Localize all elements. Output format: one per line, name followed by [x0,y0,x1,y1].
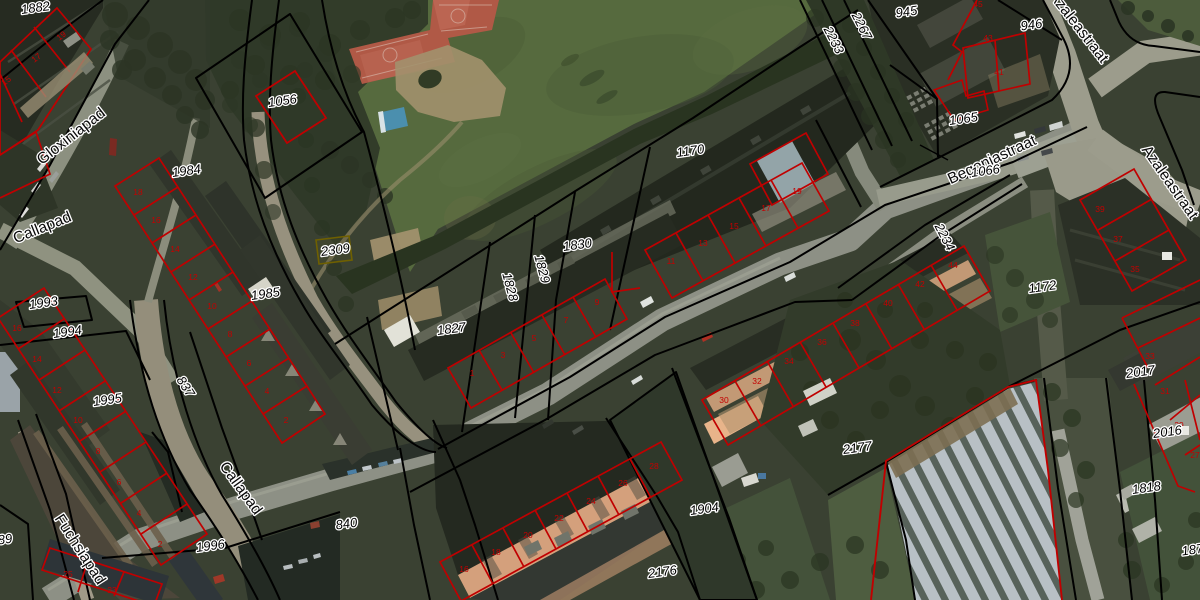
svg-text:24: 24 [586,496,596,506]
svg-text:38: 38 [850,318,860,328]
svg-text:32: 32 [752,376,762,386]
svg-text:26: 26 [618,478,628,488]
svg-text:22: 22 [554,513,564,523]
svg-text:12: 12 [52,385,62,395]
svg-text:11: 11 [667,256,676,266]
svg-text:945: 945 [895,3,919,21]
svg-text:25: 25 [63,569,73,579]
svg-text:15: 15 [729,221,739,231]
svg-text:17: 17 [761,203,771,213]
svg-text:33: 33 [1145,351,1155,361]
svg-text:6: 6 [117,477,122,487]
svg-text:16: 16 [459,564,469,574]
svg-text:20: 20 [523,530,533,540]
svg-text:2: 2 [284,415,289,425]
svg-text:37: 37 [1113,234,1123,244]
svg-text:14: 14 [32,354,42,364]
svg-text:39: 39 [1095,204,1105,214]
svg-text:187: 187 [1181,541,1200,559]
svg-text:28: 28 [649,461,659,471]
svg-text:36: 36 [817,337,827,347]
svg-text:43: 43 [983,33,993,43]
svg-text:1: 1 [470,368,475,378]
svg-text:34: 34 [784,356,794,366]
svg-text:40: 40 [883,298,893,308]
svg-text:2: 2 [158,539,163,549]
svg-text:946: 946 [1020,16,1044,34]
svg-text:18: 18 [491,547,501,557]
svg-text:16: 16 [12,323,22,333]
svg-text:14: 14 [170,244,180,254]
svg-text:10: 10 [207,301,217,311]
svg-text:8: 8 [228,329,233,339]
svg-text:6: 6 [247,358,252,368]
svg-text:4: 4 [265,386,270,396]
svg-text:12: 12 [188,272,198,282]
svg-text:7: 7 [564,315,569,325]
svg-text:18: 18 [133,187,143,197]
svg-text:3: 3 [501,350,506,360]
svg-text:35: 35 [1130,264,1140,274]
svg-text:10: 10 [73,415,83,425]
svg-text:44: 44 [948,260,958,270]
svg-text:41: 41 [994,67,1004,77]
svg-text:4: 4 [137,508,142,518]
svg-text:23: 23 [107,585,117,595]
svg-text:16: 16 [151,215,161,225]
svg-text:42: 42 [915,279,925,289]
svg-text:5: 5 [532,333,537,343]
svg-text:13: 13 [698,238,708,248]
svg-text:9: 9 [595,297,600,307]
svg-text:8: 8 [96,446,101,456]
svg-text:27: 27 [1190,450,1200,460]
svg-text:31: 31 [1160,386,1170,396]
svg-text:840: 840 [335,515,359,533]
svg-text:45: 45 [973,0,983,9]
svg-text:30: 30 [719,395,729,405]
